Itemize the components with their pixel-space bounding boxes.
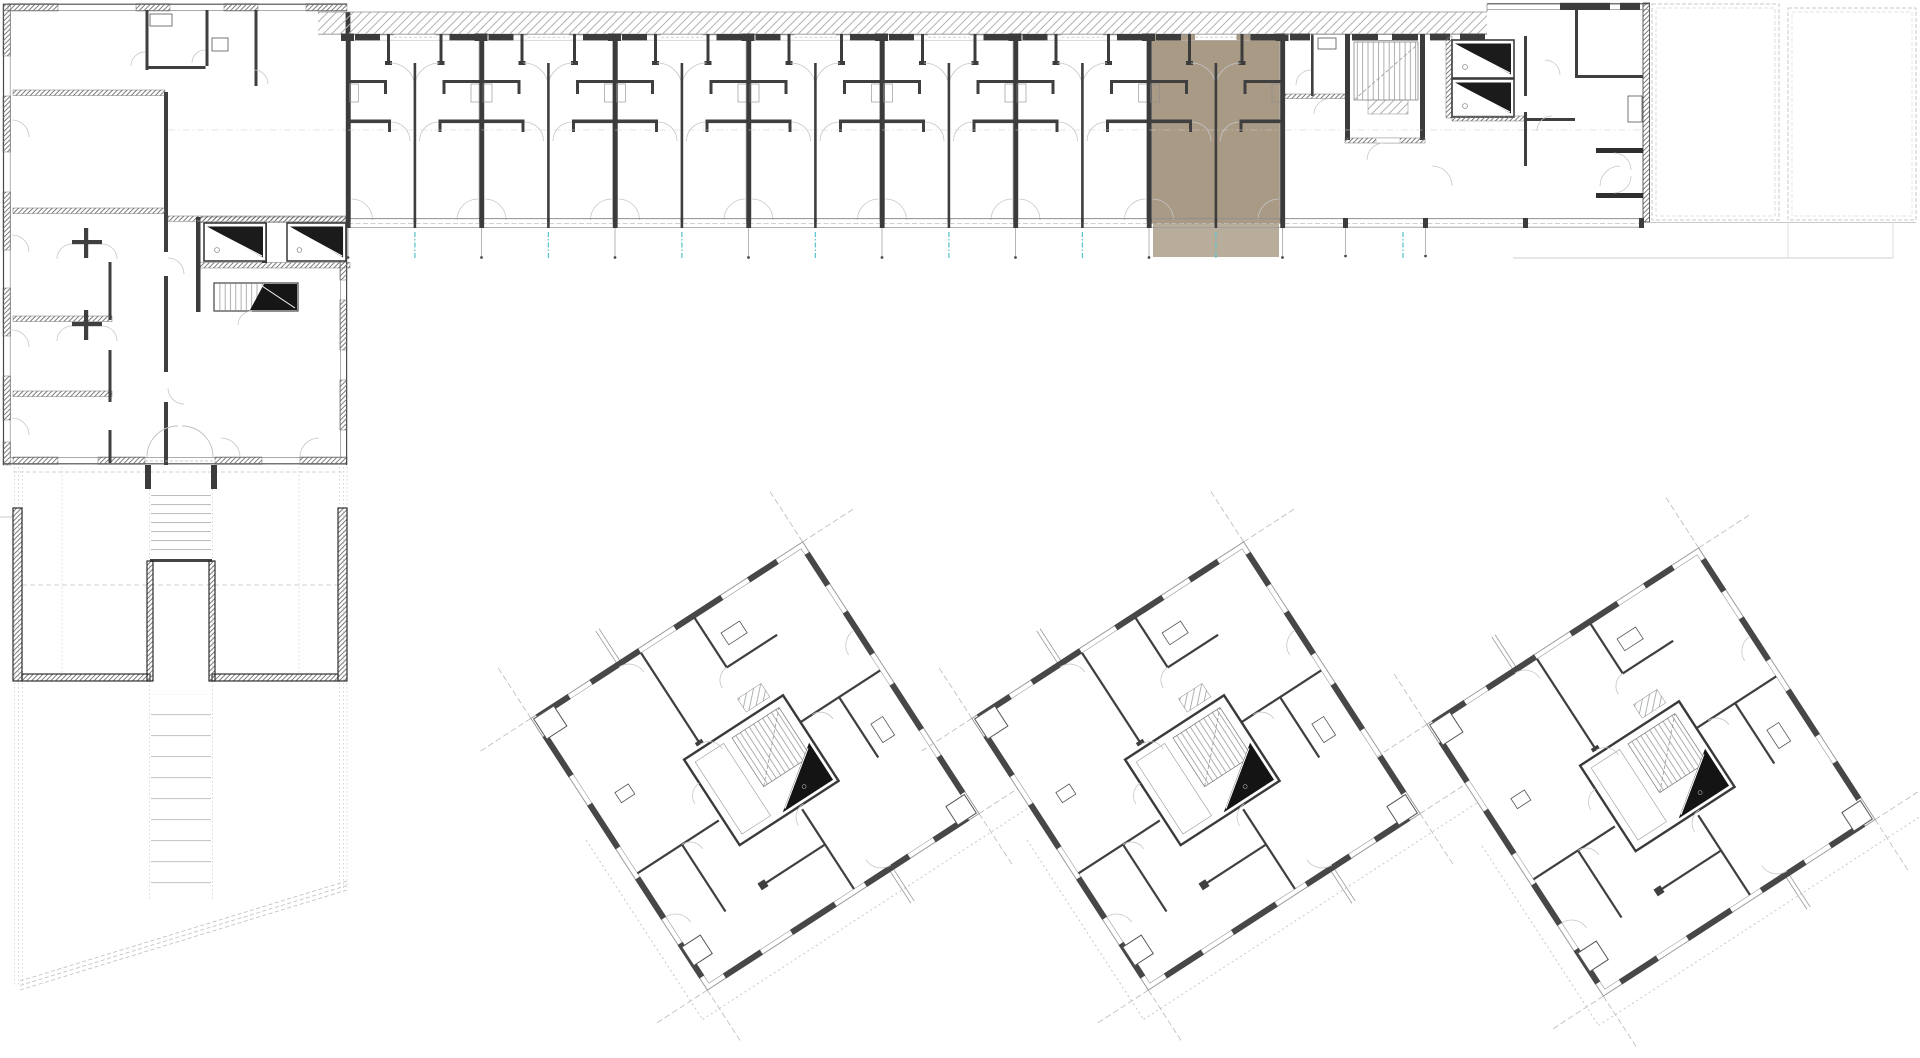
gallery-unit-module-2[interactable] bbox=[475, 34, 616, 259]
access-gallery-hatch bbox=[318, 12, 1487, 34]
stair-cheek-wall bbox=[145, 465, 151, 489]
floor-plan-page bbox=[0, 0, 1920, 1058]
left-apartment-block bbox=[0, 4, 350, 517]
courtyard-exterior-stair bbox=[13, 465, 347, 990]
stair-treads-icon bbox=[1354, 42, 1418, 100]
gallery-unit-module-5[interactable] bbox=[875, 34, 1016, 259]
left-block-pinwheel-closets bbox=[57, 228, 117, 341]
main-entrance-doors bbox=[145, 426, 215, 461]
neighbor-outline-2 bbox=[1788, 8, 1916, 220]
elevator-wedge-icon bbox=[1452, 40, 1514, 78]
stair-treads-icon bbox=[151, 492, 211, 556]
neighbor-outlines bbox=[1513, 4, 1916, 258]
stair-treads-icon bbox=[214, 283, 298, 311]
neighbor-outline-1 bbox=[1652, 4, 1779, 220]
gallery-wing bbox=[318, 3, 1650, 259]
wing-end-wall bbox=[1643, 3, 1650, 222]
corner-unit bbox=[1285, 34, 1345, 114]
gallery-unit-module-6[interactable] bbox=[1009, 34, 1150, 259]
gallery-unit-module-4[interactable] bbox=[742, 34, 883, 259]
elevator-wedge-icon bbox=[1452, 79, 1514, 117]
gallery-unit-module-3[interactable] bbox=[608, 34, 749, 259]
stair-cheek-wall bbox=[211, 465, 217, 489]
square-building-3[interactable] bbox=[1344, 441, 1920, 1058]
gallery-unit-module-1[interactable] bbox=[341, 34, 482, 259]
site-boundary-dashed bbox=[20, 881, 347, 990]
stair-treads-icon bbox=[151, 694, 211, 890]
elevator-wedge-icon bbox=[287, 223, 346, 261]
site-plan-drawing bbox=[0, 0, 1920, 1058]
left-block-core bbox=[196, 217, 350, 325]
elevator-wedge-icon bbox=[204, 223, 266, 261]
